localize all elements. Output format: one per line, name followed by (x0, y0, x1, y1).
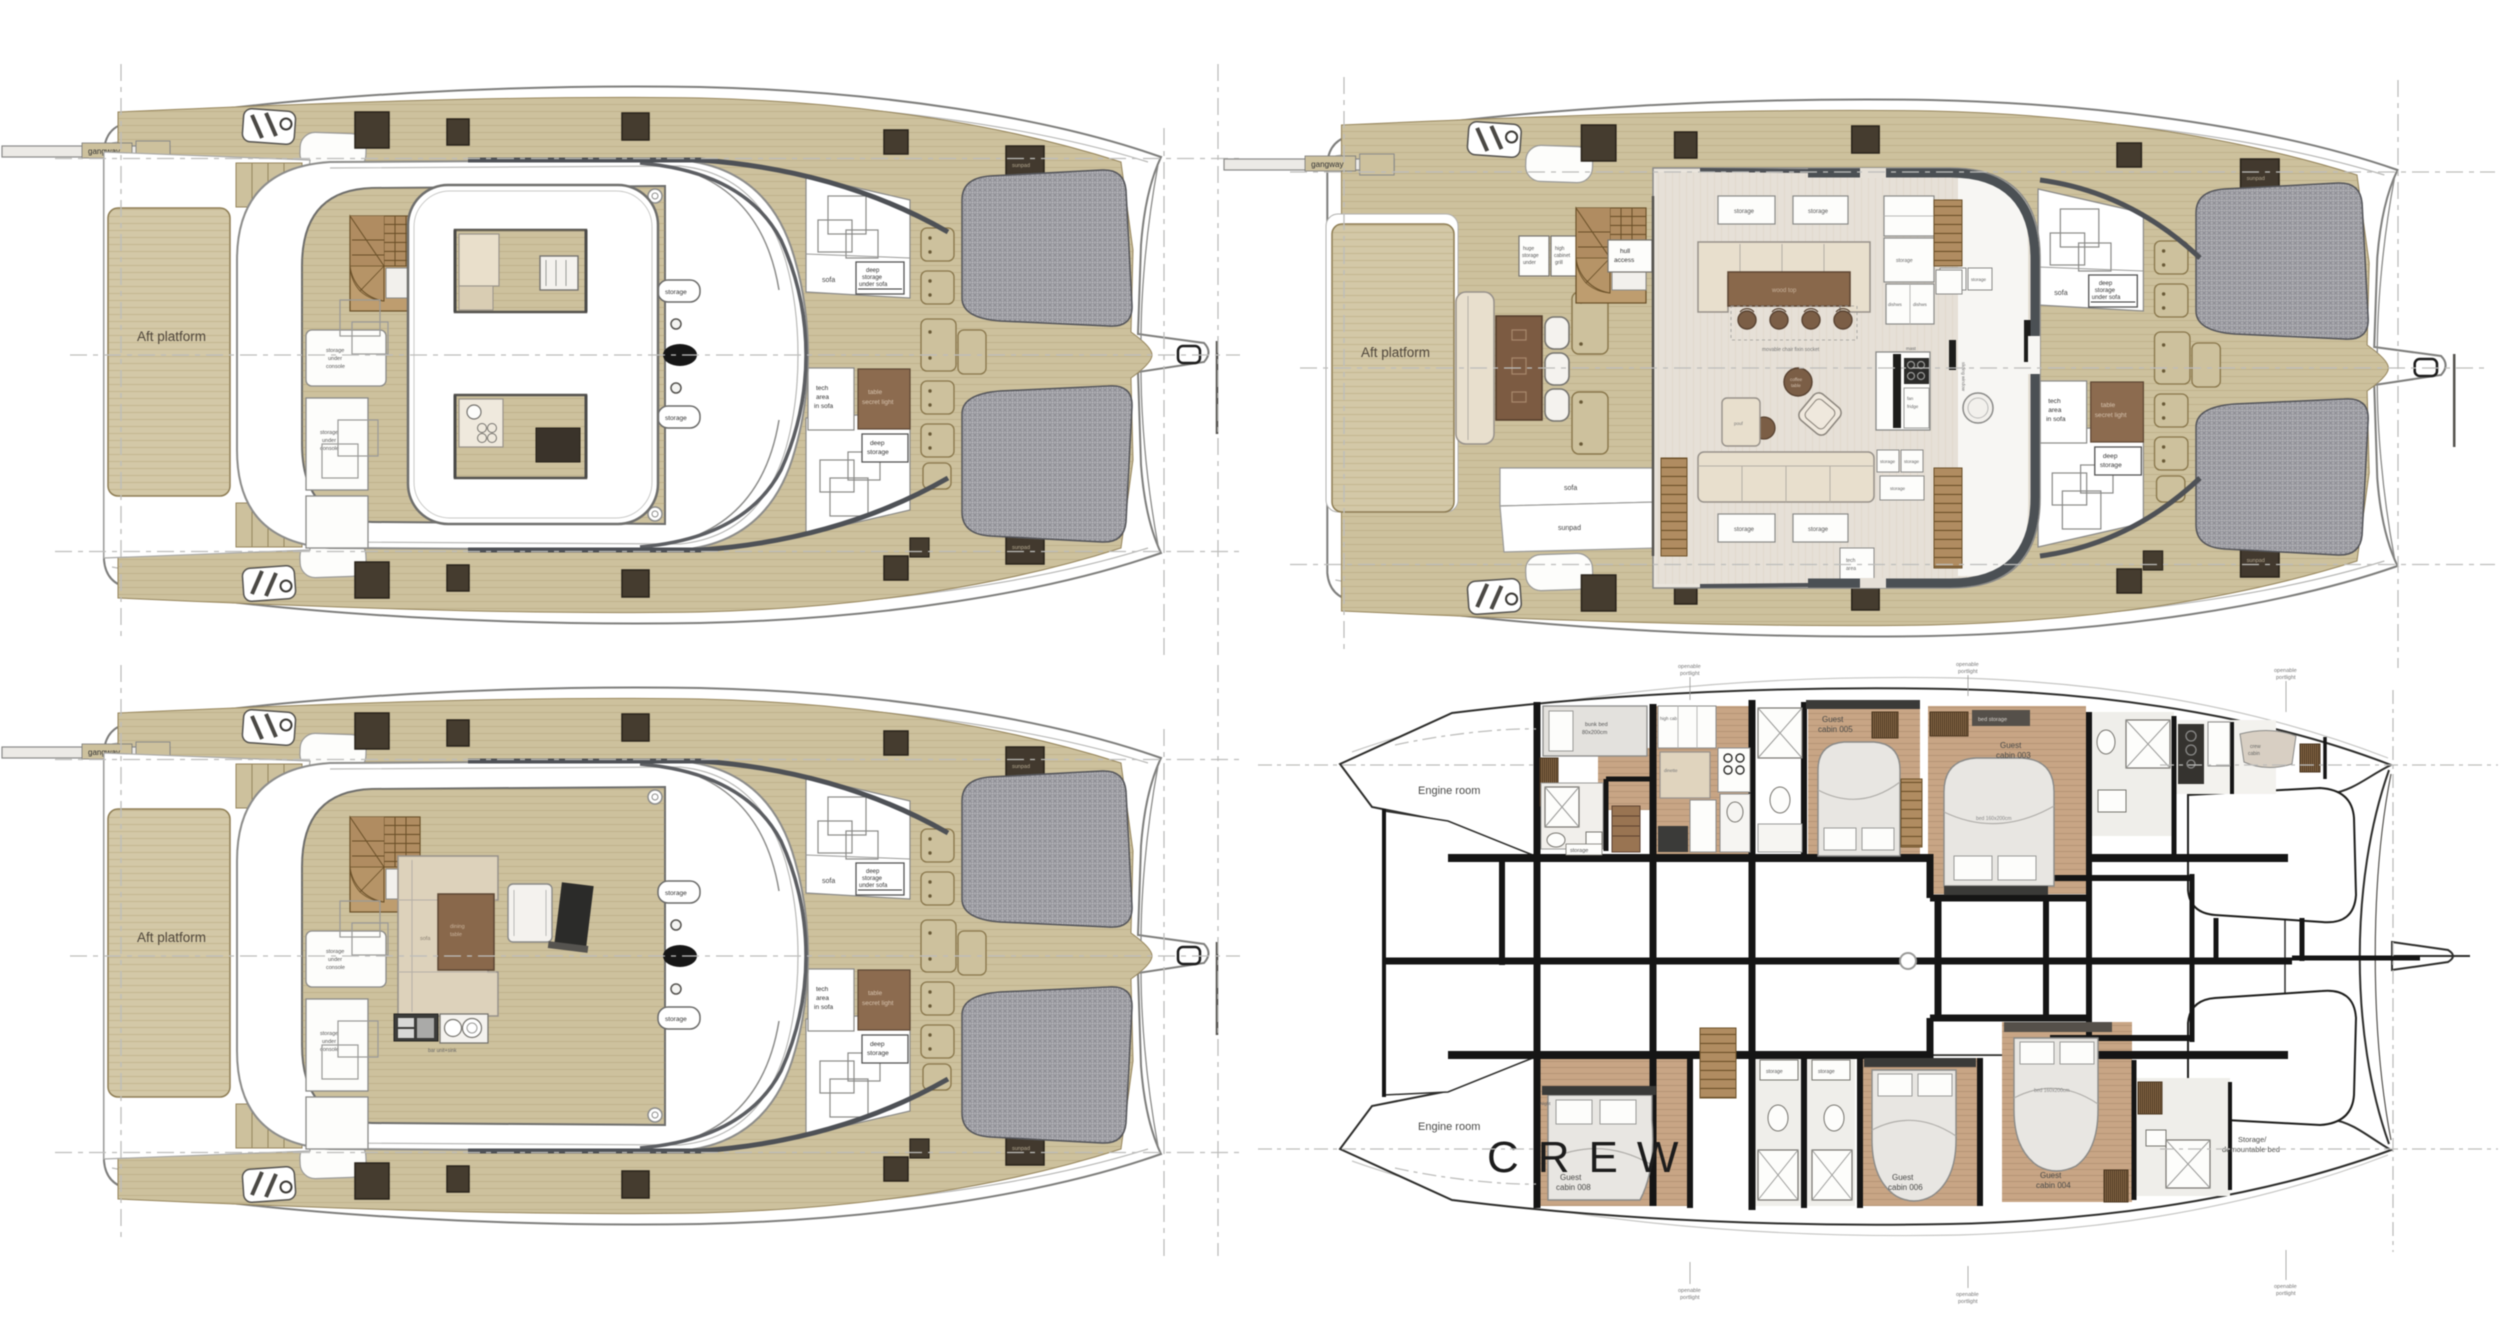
svg-text:sliding window: sliding window (1961, 362, 1966, 392)
svg-text:bed storage: bed storage (1978, 717, 2007, 723)
svg-text:dining: dining (450, 924, 465, 930)
svg-text:fridge: fridge (1907, 404, 1919, 409)
svg-text:grill: grill (1555, 260, 1563, 266)
svg-text:high cab: high cab (1660, 716, 1678, 721)
svg-text:openable: openable (2274, 1284, 2297, 1290)
svg-text:wood top: wood top (1771, 288, 1797, 294)
svg-text:cabin 003: cabin 003 (1996, 751, 2031, 760)
svg-text:Guest: Guest (2040, 1171, 2062, 1180)
svg-text:cabin 004: cabin 004 (2036, 1181, 2071, 1190)
svg-text:bed 160x200cm: bed 160x200cm (2034, 1088, 2070, 1094)
svg-text:Guest: Guest (1822, 715, 1844, 724)
svg-text:storage: storage (1890, 486, 1906, 491)
svg-text:bunk bed: bunk bed (1585, 722, 1608, 728)
svg-text:dinette: dinette (1664, 768, 1678, 773)
svg-text:sofa: sofa (420, 936, 431, 942)
svg-text:portlight: portlight (1680, 1295, 1700, 1301)
svg-text:portlight: portlight (1958, 1299, 1978, 1305)
svg-text:Guest: Guest (1892, 1173, 1914, 1182)
svg-text:sunpad: sunpad (1558, 525, 1581, 532)
svg-text:openable: openable (2274, 668, 2297, 674)
svg-text:storage: storage (1734, 527, 1755, 533)
svg-text:storage: storage (1808, 527, 1829, 533)
svg-text:portlight: portlight (1958, 669, 1978, 675)
svg-text:storage: storage (1971, 277, 1987, 282)
svg-text:cabin 008: cabin 008 (1556, 1183, 1591, 1192)
svg-text:portlight: portlight (1680, 671, 1700, 677)
svg-text:crew: crew (2250, 744, 2261, 750)
svg-text:openable: openable (1956, 1292, 1979, 1298)
svg-text:80x200cm: 80x200cm (1582, 730, 1608, 736)
svg-text:pouf: pouf (1734, 421, 1744, 426)
svg-text:Engine room: Engine room (1418, 785, 1480, 797)
svg-text:cabin 005: cabin 005 (1818, 725, 1853, 734)
svg-text:huge: huge (1523, 246, 1534, 252)
svg-text:Engine room: Engine room (1418, 1121, 1480, 1133)
svg-text:Storage/: Storage/ (2238, 1135, 2267, 1144)
svg-text:storage: storage (1522, 253, 1539, 259)
svg-text:bed 160x200cm: bed 160x200cm (1976, 816, 2012, 822)
svg-text:coffee: coffee (1790, 377, 1803, 382)
svg-text:access: access (1614, 257, 1635, 264)
svg-text:table: table (1791, 383, 1801, 388)
svg-text:bar unit+sink: bar unit+sink (428, 1048, 457, 1054)
svg-text:under: under (1523, 260, 1536, 266)
svg-text:high: high (1555, 246, 1565, 252)
svg-text:cabinet: cabinet (1554, 253, 1571, 259)
svg-text:CREW: CREW (1487, 1133, 1697, 1182)
svg-text:portlight: portlight (2276, 1291, 2296, 1297)
svg-text:sofa: sofa (1564, 485, 1577, 492)
svg-text:Guest: Guest (2000, 741, 2022, 750)
svg-text:fan: fan (1907, 396, 1914, 401)
svg-text:hull: hull (1620, 248, 1631, 255)
svg-text:tech: tech (1846, 558, 1856, 564)
svg-text:storage: storage (1734, 209, 1755, 215)
svg-text:storage: storage (1808, 209, 1829, 215)
svg-text:mast: mast (1906, 346, 1917, 351)
svg-text:dishws: dishws (1888, 302, 1903, 307)
svg-text:storage: storage (1766, 1069, 1783, 1075)
svg-text:cabin 006: cabin 006 (1888, 1183, 1923, 1192)
svg-text:table: table (450, 932, 462, 938)
svg-text:storage: storage (1904, 459, 1920, 464)
svg-text:cabin: cabin (2248, 751, 2260, 757)
svg-text:area: area (1846, 566, 1856, 572)
svg-text:storage: storage (1818, 1069, 1835, 1075)
svg-text:portlight: portlight (2276, 675, 2296, 681)
svg-text:dishws: dishws (1913, 302, 1928, 307)
svg-text:storage: storage (1570, 848, 1588, 854)
svg-text:storage: storage (1896, 258, 1913, 264)
svg-text:Night: Night (1540, 1101, 1551, 1106)
svg-text:openable: openable (1678, 1288, 1701, 1294)
svg-text:openable: openable (1678, 664, 1701, 670)
svg-text:openable: openable (1956, 662, 1979, 668)
svg-text:storage: storage (1880, 459, 1896, 464)
svg-text:movable chair fixin socket: movable chair fixin socket (1762, 347, 1820, 353)
